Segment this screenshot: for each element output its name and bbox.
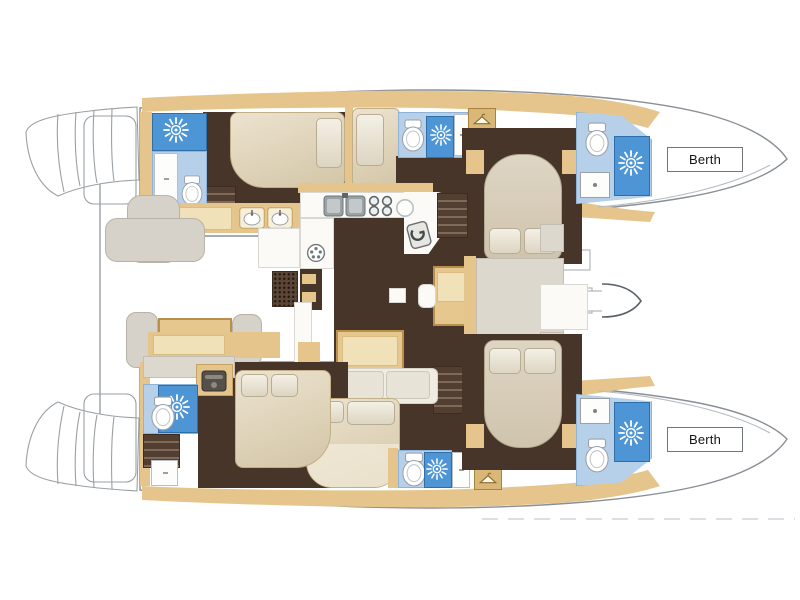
port-wardrobe <box>468 108 496 129</box>
coat-hanger-icon <box>471 112 493 126</box>
toilet-icon <box>582 122 612 158</box>
port-bow-sink <box>580 172 610 198</box>
starboard-forward-bed-pillow <box>524 348 556 374</box>
cockpit-bench-side <box>105 218 205 262</box>
berth-label-text: Berth <box>689 432 721 447</box>
stove-burners-icon <box>366 195 396 217</box>
washbasin-icon <box>267 207 293 229</box>
round-vent-icon <box>306 243 326 263</box>
port-forward-bed-pillow <box>489 228 521 254</box>
sofa-cushion <box>386 371 430 399</box>
round-sink-icon <box>395 198 415 218</box>
salon-door-handle-block <box>302 274 316 284</box>
port-forward-nightstand <box>466 150 484 174</box>
mast-chevron-icon <box>602 284 641 317</box>
starboard-bow-sink <box>580 398 610 424</box>
cockpit-cabinet <box>258 228 300 268</box>
toilet-icon <box>149 396 177 432</box>
chart-table-seat <box>418 284 436 308</box>
starboard-mid-bed-pillow <box>347 401 395 425</box>
toilet-icon <box>582 438 612 474</box>
salon-coffee-table-top <box>342 336 398 366</box>
salon-door-handle-block <box>302 292 316 302</box>
starboard-aft-bed-pillow <box>241 374 268 397</box>
sofa-cushion <box>342 371 384 399</box>
bow-berth-label-port: Berth <box>667 147 743 172</box>
port-aft-bed-pillow <box>316 118 342 168</box>
salon-table-base <box>389 288 406 303</box>
port-mid-bed-pillow <box>356 114 384 166</box>
stairs-to-port-hull <box>437 193 468 238</box>
forward-berth-mattress <box>540 284 588 330</box>
starboard-forward-nightstand <box>466 424 484 448</box>
washbasin-icon <box>239 207 265 229</box>
shower-sun-icon <box>430 124 452 146</box>
toilet-icon <box>400 118 426 154</box>
shower-sun-icon <box>618 150 644 176</box>
starboard-aft-bed-pillow <box>271 374 298 397</box>
shower-sun-icon <box>426 458 448 480</box>
starboard-aft-door <box>151 460 178 486</box>
appliance-icon <box>201 370 227 392</box>
forward-step-block <box>540 224 564 252</box>
berth-label-text: Berth <box>689 152 721 167</box>
starboard-aft-cabinet-panel <box>153 335 225 355</box>
shower-sun-icon <box>618 420 644 446</box>
salon-floor-top-right <box>433 183 472 193</box>
catamaran-floorplan: Berth <box>0 0 800 600</box>
starboard-forward-bed-pillow <box>489 348 521 374</box>
shower-sun-icon <box>163 117 189 143</box>
starboard-mid-bath-trim <box>388 448 398 488</box>
forward-bulkhead-trim <box>464 256 476 344</box>
galley-twin-sinks-icon <box>323 193 367 218</box>
coat-hanger-icon <box>477 471 499 485</box>
bow-berth-label-starboard: Berth <box>667 427 743 452</box>
